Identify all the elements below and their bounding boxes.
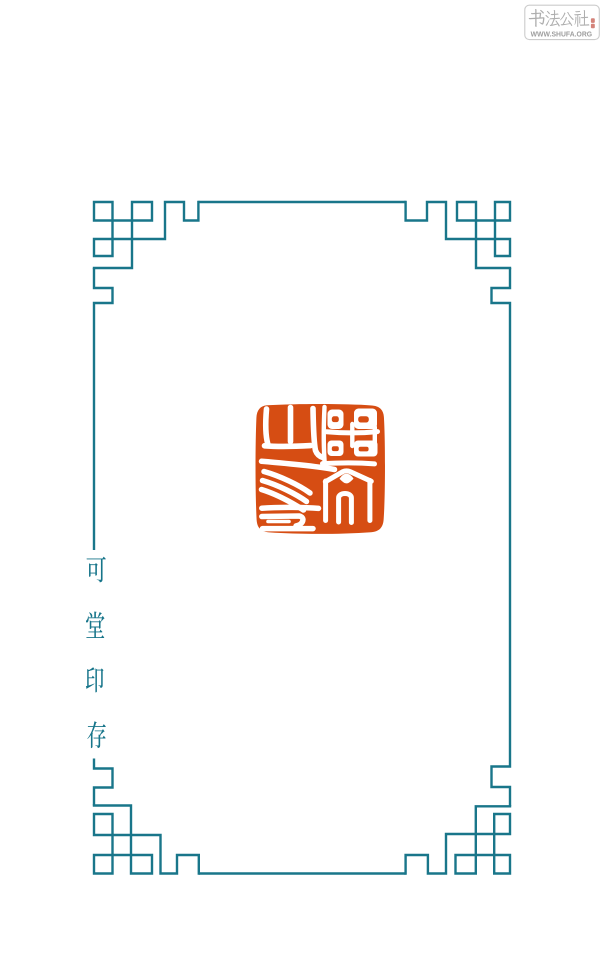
svg-text:WWW.SHUFA.ORG: WWW.SHUFA.ORG: [531, 30, 593, 39]
